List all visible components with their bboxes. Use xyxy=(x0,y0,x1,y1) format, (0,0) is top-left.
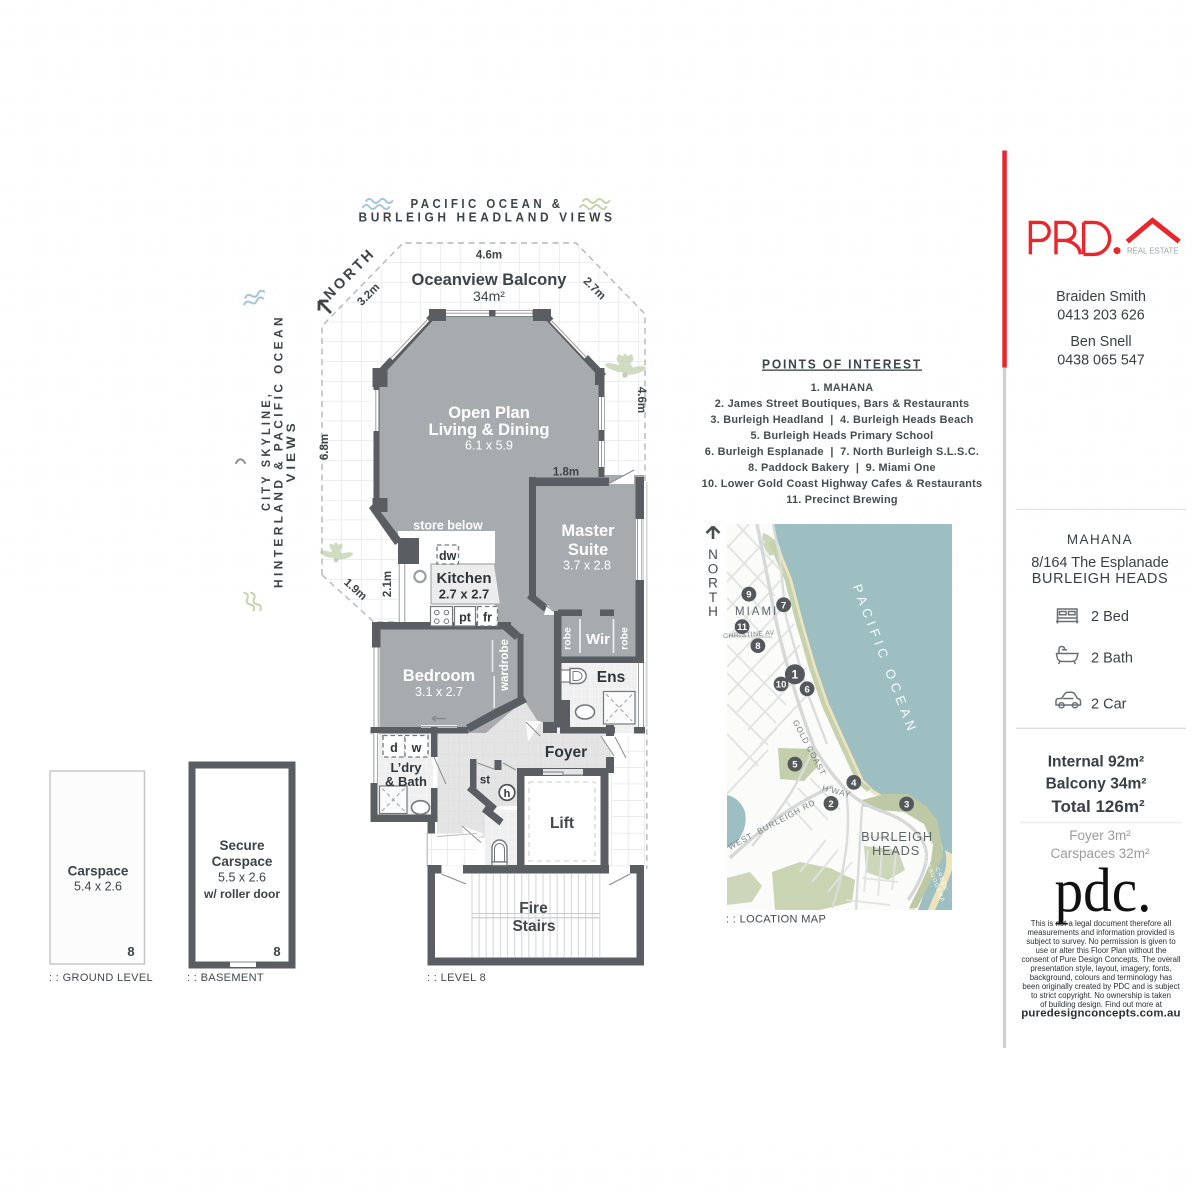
svg-text:: : LEVEL 8: : : LEVEL 8 xyxy=(427,972,486,984)
svg-text:8/164 The Esplanade: 8/164 The Esplanade xyxy=(1031,555,1169,571)
svg-text:6.1 x 5.9: 6.1 x 5.9 xyxy=(465,439,513,453)
svg-text:Carspace: Carspace xyxy=(212,854,273,869)
svg-text:Balcony 34m²: Balcony 34m² xyxy=(1046,775,1147,792)
svg-text:6: 6 xyxy=(804,684,809,695)
svg-text:: : LOCATION MAP: : : LOCATION MAP xyxy=(726,914,826,926)
svg-text:Kitchen: Kitchen xyxy=(436,570,491,587)
svg-text:consent of Pure Design Concept: consent of Pure Design Concepts. The ove… xyxy=(1022,955,1181,964)
svg-text:Suite: Suite xyxy=(568,541,608,559)
svg-text:11. Precinct Brewing: 11. Precinct Brewing xyxy=(786,494,898,506)
svg-text:2 Bed: 2 Bed xyxy=(1091,609,1129,625)
svg-text:2.7 x 2.7: 2.7 x 2.7 xyxy=(439,587,490,602)
svg-text:1.8m: 1.8m xyxy=(553,467,579,479)
svg-text:BURLEIGH HEADLAND VIEWS: BURLEIGH HEADLAND VIEWS xyxy=(359,210,616,225)
svg-text:H: H xyxy=(708,604,718,619)
svg-text:background, colours and termin: background, colours and terminology has xyxy=(1030,973,1173,982)
svg-text:O: O xyxy=(708,561,719,576)
svg-text:REAL ESTATE: REAL ESTATE xyxy=(1127,246,1179,256)
svg-text:3. Burleigh Headland | 4. Bu: 3. Burleigh Headland | 4. Burleigh Heads… xyxy=(710,414,973,426)
svg-text:puredesignconcepts.com.au: puredesignconcepts.com.au xyxy=(1021,1008,1180,1020)
svg-text:7: 7 xyxy=(781,600,786,611)
svg-text:2. James Street Boutiques, Bar: 2. James Street Boutiques, Bars & Restau… xyxy=(715,398,970,410)
svg-text:0413 203 626: 0413 203 626 xyxy=(1057,308,1145,324)
svg-text:T: T xyxy=(709,590,717,605)
svg-text:store below: store below xyxy=(413,519,483,533)
svg-text:3.1 x 2.7: 3.1 x 2.7 xyxy=(415,685,463,699)
svg-text:to strict copyright. No owners: to strict copyright. No ownership is tak… xyxy=(1031,991,1171,1000)
svg-text:2 Car: 2 Car xyxy=(1091,696,1127,712)
svg-text:BURLEIGH HEADS: BURLEIGH HEADS xyxy=(1032,571,1169,587)
svg-text:8: 8 xyxy=(755,641,760,652)
svg-text:Master: Master xyxy=(561,522,615,540)
svg-text:HEADS: HEADS xyxy=(872,843,920,858)
svg-text:pt: pt xyxy=(459,611,472,625)
svg-text:subject to survey. No permissi: subject to survey. No permission is give… xyxy=(1026,937,1176,946)
svg-text:POINTS OF INTEREST: POINTS OF INTEREST xyxy=(762,357,922,372)
svg-text:d: d xyxy=(390,741,398,755)
svg-text:3.7 x 2.8: 3.7 x 2.8 xyxy=(563,559,611,573)
svg-text:Foyer 3m²: Foyer 3m² xyxy=(1069,828,1131,843)
svg-text:1. MAHANA: 1. MAHANA xyxy=(811,382,874,394)
svg-text:0438 065 547: 0438 065 547 xyxy=(1057,352,1145,368)
svg-text:MIAMI: MIAMI xyxy=(735,606,778,618)
svg-text:Internal 92m²: Internal 92m² xyxy=(1048,753,1144,770)
svg-text:4: 4 xyxy=(851,778,857,789)
svg-text:Foyer: Foyer xyxy=(545,744,587,761)
svg-text:Bedroom: Bedroom xyxy=(403,667,475,685)
svg-text:8: 8 xyxy=(273,944,280,959)
svg-text:measurements and information p: measurements and information provided is xyxy=(1027,928,1174,937)
svg-text:MAHANA: MAHANA xyxy=(1067,532,1133,547)
svg-text:This is not a legal document t: This is not a legal document therefore a… xyxy=(1031,919,1172,928)
svg-text:dw: dw xyxy=(439,549,457,563)
svg-text:2: 2 xyxy=(828,799,833,810)
svg-text:2 Bath: 2 Bath xyxy=(1091,651,1133,667)
svg-text:w: w xyxy=(411,741,422,755)
svg-text:Open Plan: Open Plan xyxy=(448,404,530,422)
svg-text:1: 1 xyxy=(792,668,799,682)
svg-text:been originally created by PDC: been originally created by PDC and is su… xyxy=(1022,982,1180,991)
svg-text:BURLEIGH: BURLEIGH xyxy=(861,829,933,844)
svg-text:st: st xyxy=(480,775,490,787)
svg-text:34m²: 34m² xyxy=(473,288,505,304)
svg-text:Lift: Lift xyxy=(550,815,574,832)
svg-text:L’dry: L’dry xyxy=(390,760,422,775)
svg-text:Stairs: Stairs xyxy=(512,918,555,935)
svg-text:4.6m: 4.6m xyxy=(635,387,647,413)
svg-text:3: 3 xyxy=(904,800,909,811)
svg-text:Living & Dining: Living & Dining xyxy=(429,421,550,439)
svg-text:presentation style, layout, im: presentation style, layout, imagery, fon… xyxy=(1030,964,1171,973)
svg-text:Ens: Ens xyxy=(597,669,625,686)
svg-text:6.8m: 6.8m xyxy=(319,434,331,460)
svg-text:5.4 x 2.6: 5.4 x 2.6 xyxy=(74,880,122,894)
svg-text:use or alter this Floor Plan w: use or alter this Floor Plan without the xyxy=(1036,946,1167,955)
svg-text:10: 10 xyxy=(776,680,787,691)
svg-text:11: 11 xyxy=(737,622,748,633)
svg-text:Total 126m²: Total 126m² xyxy=(1051,797,1145,816)
svg-text:5.5 x 2.6: 5.5 x 2.6 xyxy=(218,871,266,885)
svg-text:fr: fr xyxy=(483,611,492,625)
svg-text:6. Burleigh Esplanade | 7. N: 6. Burleigh Esplanade | 7. North Burleig… xyxy=(705,446,979,458)
svg-text:robe: robe xyxy=(562,627,574,650)
svg-text:8. Paddock Bakery | 9. Miami: 8. Paddock Bakery | 9. Miami One xyxy=(748,462,936,474)
svg-text:Ben Snell: Ben Snell xyxy=(1070,334,1131,350)
svg-text:robe: robe xyxy=(619,627,631,650)
svg-text:w/ roller door: w/ roller door xyxy=(203,887,280,901)
svg-text:4.6m: 4.6m xyxy=(476,250,502,262)
svg-text:8: 8 xyxy=(127,944,134,959)
svg-text:: : GROUND LEVEL: : : GROUND LEVEL xyxy=(49,972,153,984)
svg-text:N: N xyxy=(708,547,718,562)
svg-text:R: R xyxy=(708,576,718,591)
svg-text:Carspace: Carspace xyxy=(68,864,129,879)
svg-text:Wir: Wir xyxy=(586,631,610,648)
svg-text:Braiden Smith: Braiden Smith xyxy=(1056,289,1146,305)
svg-text:2.1m: 2.1m xyxy=(382,571,394,597)
svg-text:& Bath: & Bath xyxy=(385,774,427,789)
svg-text:h: h xyxy=(504,788,511,800)
svg-text:VIEWS: VIEWS xyxy=(284,420,298,483)
svg-text:5: 5 xyxy=(792,760,798,771)
svg-text:5. Burleigh Heads Primary Scho: 5. Burleigh Heads Primary School xyxy=(751,430,934,442)
svg-text:Secure: Secure xyxy=(219,838,265,853)
svg-text:wardrobe: wardrobe xyxy=(499,639,511,692)
svg-text:: : BASEMENT: : : BASEMENT xyxy=(187,972,264,984)
svg-text:Oceanview Balcony: Oceanview Balcony xyxy=(412,271,568,289)
svg-text:9: 9 xyxy=(746,590,751,601)
svg-text:Fire: Fire xyxy=(519,900,548,917)
svg-text:10. Lower Gold Coast Highway C: 10. Lower Gold Coast Highway Cafes & Res… xyxy=(702,478,983,490)
svg-text:pdc.: pdc. xyxy=(1055,857,1152,925)
